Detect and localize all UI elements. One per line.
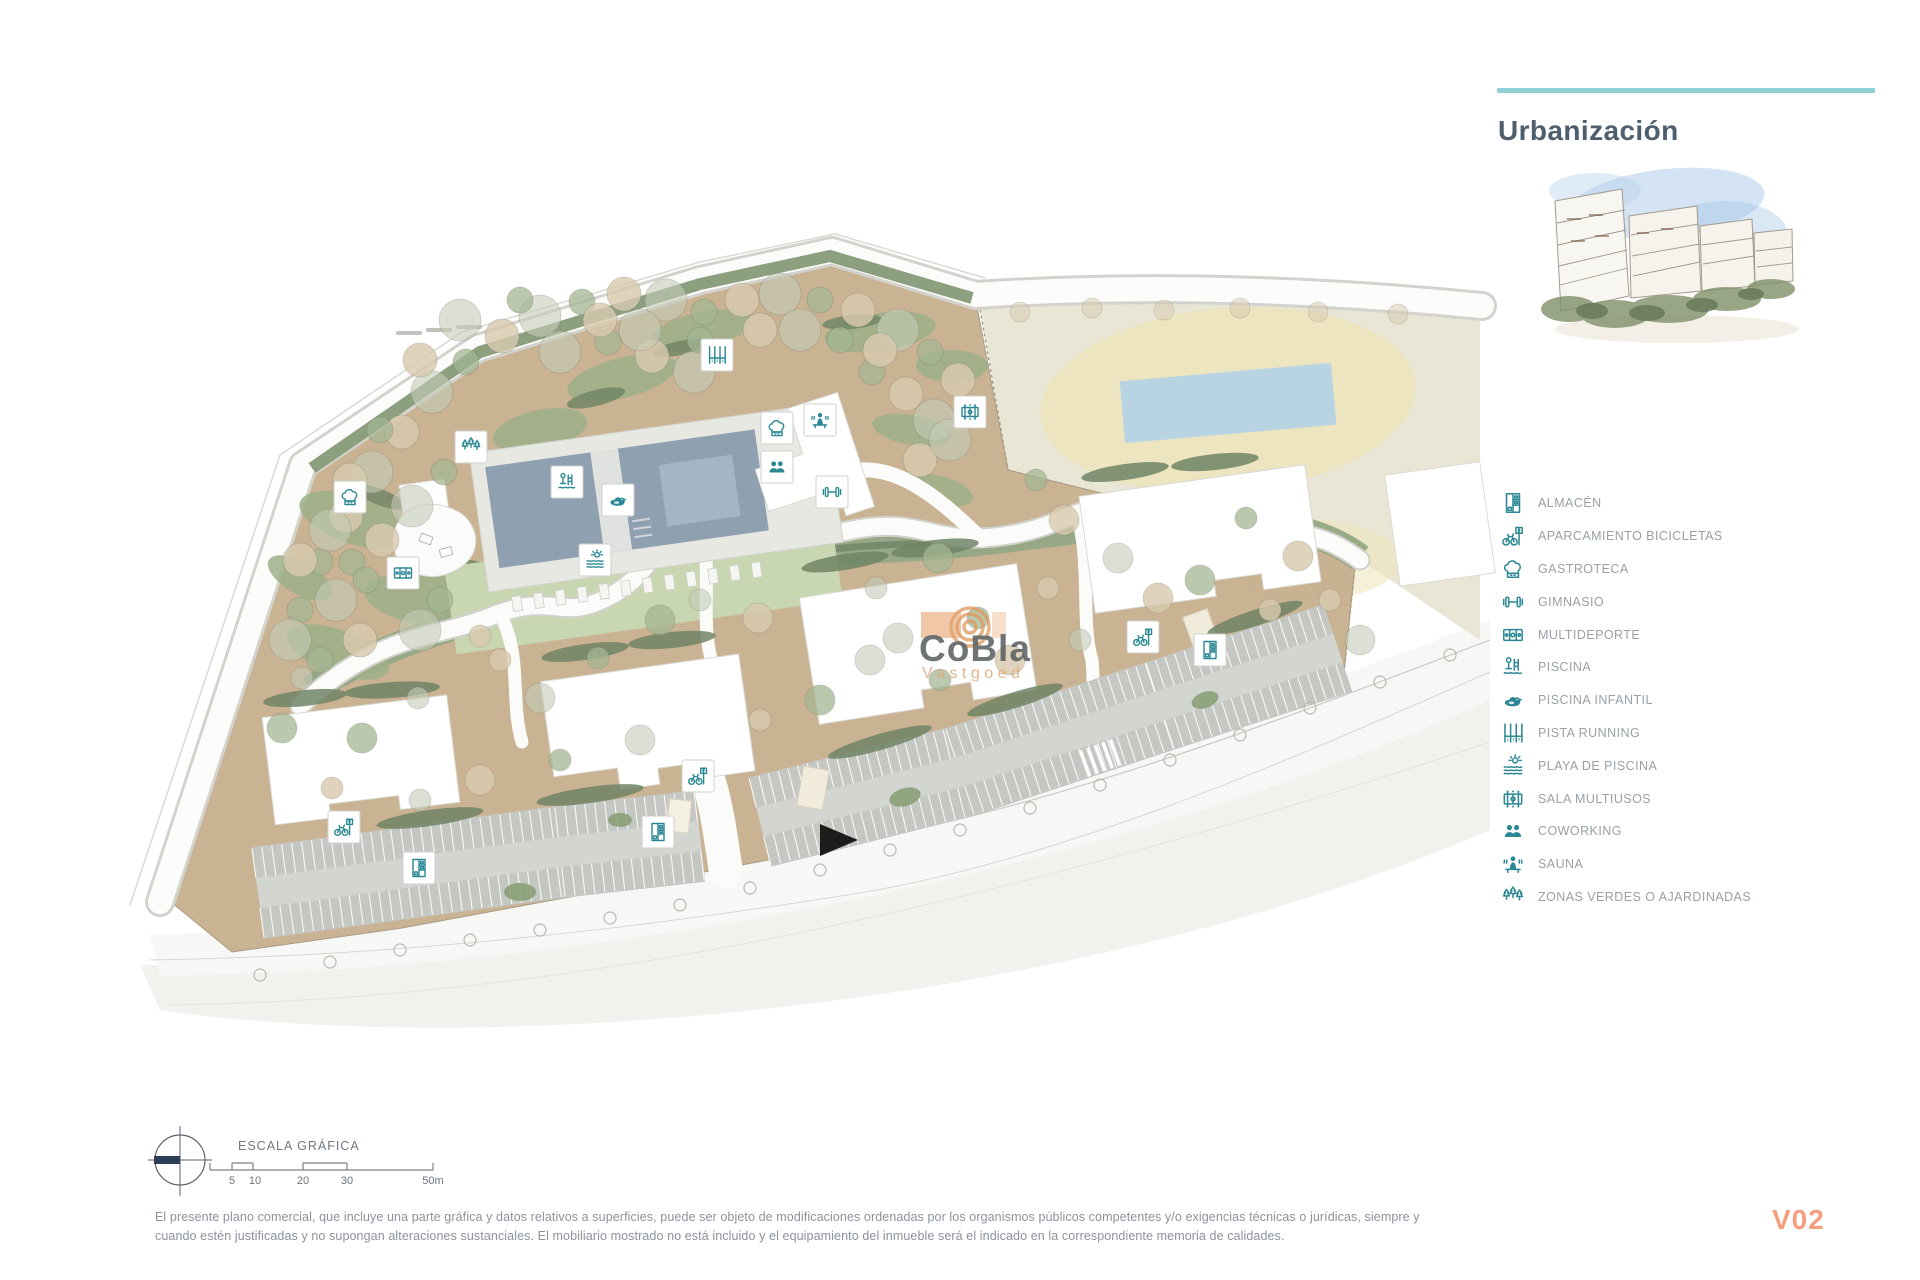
legend-item-coworking: COWORKING xyxy=(1498,815,1751,848)
gastroteca-icon xyxy=(1498,554,1528,584)
info-panel: Urbanización xyxy=(1497,88,1889,366)
svg-text:5: 5 xyxy=(229,1175,235,1187)
legend-label: PISCINA INFANTIL xyxy=(1538,693,1653,707)
multideporte-icon xyxy=(1498,620,1528,650)
map-marker-gastroteca-icon xyxy=(761,412,793,444)
svg-text:10: 10 xyxy=(249,1175,261,1187)
building-render xyxy=(1537,161,1889,366)
map-marker-coworking-icon xyxy=(761,451,793,483)
map-marker-multideporte-icon xyxy=(387,557,419,589)
map-marker-almacen-icon xyxy=(642,816,674,848)
legend-label: GIMNASIO xyxy=(1538,595,1604,609)
sala-multiusos-icon xyxy=(1498,784,1528,814)
map-marker-piscina-infantil-icon xyxy=(602,484,634,516)
watercolor-sketch xyxy=(1537,161,1807,361)
bike-parking-icon xyxy=(1498,521,1528,551)
svg-text:30: 30 xyxy=(341,1175,353,1187)
disclaimer-line-1: El presente plano comercial, que incluye… xyxy=(155,1210,1420,1224)
map-marker-gastroteca-icon xyxy=(334,481,366,513)
watermark-line2: Vastgoed xyxy=(922,665,1024,682)
scale-title: ESCALA GRÁFICA xyxy=(238,1138,360,1153)
legend-item-multideporte: MULTIDEPORTE xyxy=(1498,618,1751,651)
legend-label: COWORKING xyxy=(1538,824,1622,838)
map-marker-bike-parking-icon xyxy=(682,760,714,792)
legend-label: GASTROTECA xyxy=(1538,562,1629,576)
map-marker-zonas-verdes-icon xyxy=(455,431,487,463)
map-marker-bike-parking-icon xyxy=(1127,621,1159,653)
coworking-icon xyxy=(1498,816,1528,846)
map-marker-piscina-icon xyxy=(551,466,583,498)
legend-label: ZONAS VERDES O AJARDINADAS xyxy=(1538,890,1751,904)
legend-label: PISTA RUNNING xyxy=(1538,726,1640,740)
legend-label: MULTIDEPORTE xyxy=(1538,628,1640,642)
svg-text:50m: 50m xyxy=(422,1175,443,1187)
legend-item-aparcamiento-bicicletas: APARCAMIENTO BICICLETAS xyxy=(1498,520,1751,553)
scale-bar: ESCALA GRÁFICA 5 10 20 30 50m xyxy=(148,1126,444,1196)
disclaimer-line-2: cuando estén justificadas y no supongan … xyxy=(155,1229,1285,1243)
map-marker-sauna-icon xyxy=(804,404,836,436)
page-title: Urbanización xyxy=(1498,115,1889,147)
legend-item-gimnasio: GIMNASIO xyxy=(1498,585,1751,618)
map-marker-gimnasio-icon xyxy=(816,476,848,508)
legend-item-piscina: PISCINA xyxy=(1498,651,1751,684)
piscina-infantil-icon xyxy=(1498,685,1528,715)
legend-label: APARCAMIENTO BICICLETAS xyxy=(1538,529,1723,543)
legend-item-gastroteca: GASTROTECA xyxy=(1498,553,1751,586)
map-marker-almacen-icon xyxy=(1194,634,1226,666)
map-marker-almacen-icon xyxy=(403,852,435,884)
legend-label: SAUNA xyxy=(1538,857,1583,871)
legend-label: SALA MULTIUSOS xyxy=(1538,792,1651,806)
map-marker-bike-parking-icon xyxy=(328,811,360,843)
legend-item-playa-de-piscina: PLAYA DE PISCINA xyxy=(1498,749,1751,782)
map-marker-playa-piscina-icon xyxy=(579,544,611,576)
zonas-verdes-icon xyxy=(1498,882,1528,912)
legend-label: PISCINA xyxy=(1538,660,1591,674)
map-marker-pista-running-icon xyxy=(701,339,733,371)
legend-item-sauna: SAUNA xyxy=(1498,848,1751,881)
compass-needle xyxy=(154,1156,180,1164)
legend: ALMACÉNAPARCAMIENTO BICICLETASGASTROTECA… xyxy=(1498,487,1751,913)
gimnasio-icon xyxy=(1498,587,1528,617)
legend-item-almac-n: ALMACÉN xyxy=(1498,487,1751,520)
version-label: V02 xyxy=(1772,1204,1825,1236)
legend-item-pista-running: PISTA RUNNING xyxy=(1498,717,1751,750)
svg-text:20: 20 xyxy=(297,1175,309,1187)
teal-rule xyxy=(1497,88,1875,93)
playa-piscina-icon xyxy=(1498,751,1528,781)
pista-running-icon xyxy=(1498,718,1528,748)
sauna-icon xyxy=(1498,849,1528,879)
legend-item-sala-multiusos: SALA MULTIUSOS xyxy=(1498,782,1751,815)
almacen-icon xyxy=(1498,488,1528,518)
map-marker-sala-multiusos-icon xyxy=(954,396,986,428)
watermark-line1: CoBla xyxy=(919,628,1031,669)
piscina-icon xyxy=(1498,652,1528,682)
legend-item-zonas-verdes-o-ajardinadas: ZONAS VERDES O AJARDINADAS xyxy=(1498,881,1751,914)
legend-label: ALMACÉN xyxy=(1538,496,1602,510)
legend-label: PLAYA DE PISCINA xyxy=(1538,759,1657,773)
legend-item-piscina-infantil: PISCINA INFANTIL xyxy=(1498,684,1751,717)
